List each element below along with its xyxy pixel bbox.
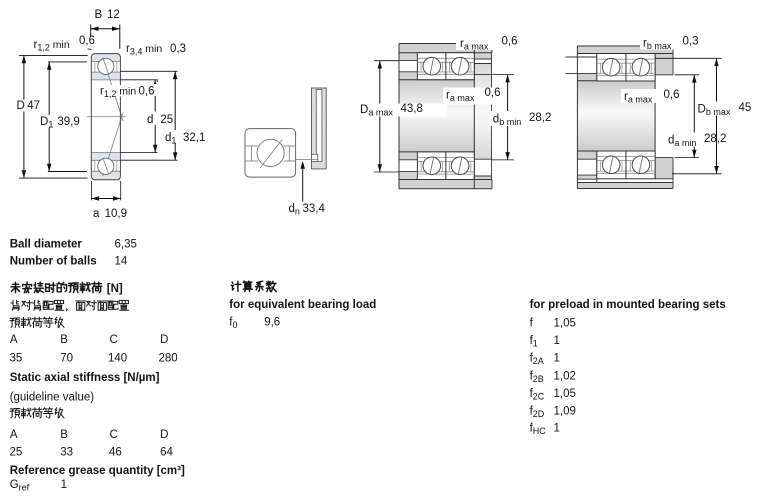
svg-text:1: 1 xyxy=(554,335,560,347)
svg-text:28,2: 28,2 xyxy=(704,133,726,145)
svg-text:f: f xyxy=(530,318,534,330)
svg-text:for preload in mounted bearing: for preload in mounted bearing sets xyxy=(530,299,726,311)
svg-text:28,2: 28,2 xyxy=(529,112,551,124)
svg-text:Ball diameter: Ball diameter xyxy=(10,239,83,251)
svg-text:12: 12 xyxy=(107,9,120,21)
svg-text:45: 45 xyxy=(739,102,752,114)
svg-text:1,05: 1,05 xyxy=(554,318,576,330)
svg-text:f2A: f2A xyxy=(530,353,544,367)
svg-text:(guideline value): (guideline value) xyxy=(10,392,95,404)
svg-text:d: d xyxy=(147,114,153,126)
svg-text:46: 46 xyxy=(109,447,122,459)
svg-text:f2C: f2C xyxy=(530,388,545,402)
svg-text:33,4: 33,4 xyxy=(303,203,326,215)
svg-text:1,05: 1,05 xyxy=(554,388,576,400)
svg-text:Gref: Gref xyxy=(10,479,30,493)
svg-text:A: A xyxy=(10,429,18,441)
svg-text:0,6: 0,6 xyxy=(664,89,680,101)
svg-text:1: 1 xyxy=(554,423,560,435)
svg-text:1: 1 xyxy=(554,353,560,365)
svg-text:0,6: 0,6 xyxy=(139,86,155,98)
svg-text:B: B xyxy=(60,429,68,441)
svg-text:D: D xyxy=(17,100,25,112)
svg-text:Static axial stiffness [N/µm]: Static axial stiffness [N/µm] xyxy=(10,372,160,384)
svg-text:0,3: 0,3 xyxy=(170,43,186,55)
svg-text:9,6: 9,6 xyxy=(264,317,280,329)
svg-text:32,1: 32,1 xyxy=(183,132,205,144)
svg-text:f0: f0 xyxy=(229,317,237,331)
svg-text:B: B xyxy=(95,9,103,21)
svg-text:Reference grease quantity [cm³: Reference grease quantity [cm³] xyxy=(10,465,185,477)
svg-text:r3,4 min: r3,4 min xyxy=(126,43,162,57)
svg-text:25: 25 xyxy=(160,114,173,126)
svg-text:fHC: fHC xyxy=(530,423,547,437)
svg-text:39,9: 39,9 xyxy=(57,116,79,128)
svg-text:43,8: 43,8 xyxy=(401,103,423,115)
svg-text:D: D xyxy=(160,429,168,441)
svg-text:64: 64 xyxy=(160,447,173,459)
svg-text:1,09: 1,09 xyxy=(554,406,576,418)
svg-text:a: a xyxy=(93,208,100,220)
svg-text:Number of balls: Number of balls xyxy=(10,256,97,268)
svg-text:70: 70 xyxy=(60,353,73,365)
svg-text:35: 35 xyxy=(10,353,23,365)
svg-text:dn: dn xyxy=(289,203,300,217)
svg-text:6,35: 6,35 xyxy=(115,239,137,251)
svg-text:A: A xyxy=(10,334,18,346)
svg-text:10,9: 10,9 xyxy=(105,208,127,220)
svg-text:0,3: 0,3 xyxy=(683,36,699,48)
svg-text:0,6: 0,6 xyxy=(79,35,95,47)
svg-text:280: 280 xyxy=(159,353,178,365)
svg-text:f2D: f2D xyxy=(530,406,545,420)
svg-text:1: 1 xyxy=(61,479,67,491)
svg-text:1,02: 1,02 xyxy=(554,371,576,383)
svg-text:f1: f1 xyxy=(530,335,538,349)
svg-text:25: 25 xyxy=(10,447,23,459)
svg-text:C: C xyxy=(110,429,118,441)
svg-text:r1,2 min: r1,2 min xyxy=(34,39,70,53)
svg-text:140: 140 xyxy=(108,353,127,365)
svg-text:33: 33 xyxy=(60,447,73,459)
svg-text:[N]: [N] xyxy=(107,283,123,295)
svg-text:47: 47 xyxy=(27,100,40,112)
svg-text:0,6: 0,6 xyxy=(502,36,518,48)
svg-text:D: D xyxy=(160,334,168,346)
svg-text:f2B: f2B xyxy=(530,371,544,385)
svg-text:14: 14 xyxy=(115,256,128,268)
svg-text:0,6: 0,6 xyxy=(485,87,501,99)
svg-text:C: C xyxy=(110,334,118,346)
svg-text:B: B xyxy=(60,334,68,346)
svg-text:for equivalent bearing load: for equivalent bearing load xyxy=(229,299,376,311)
